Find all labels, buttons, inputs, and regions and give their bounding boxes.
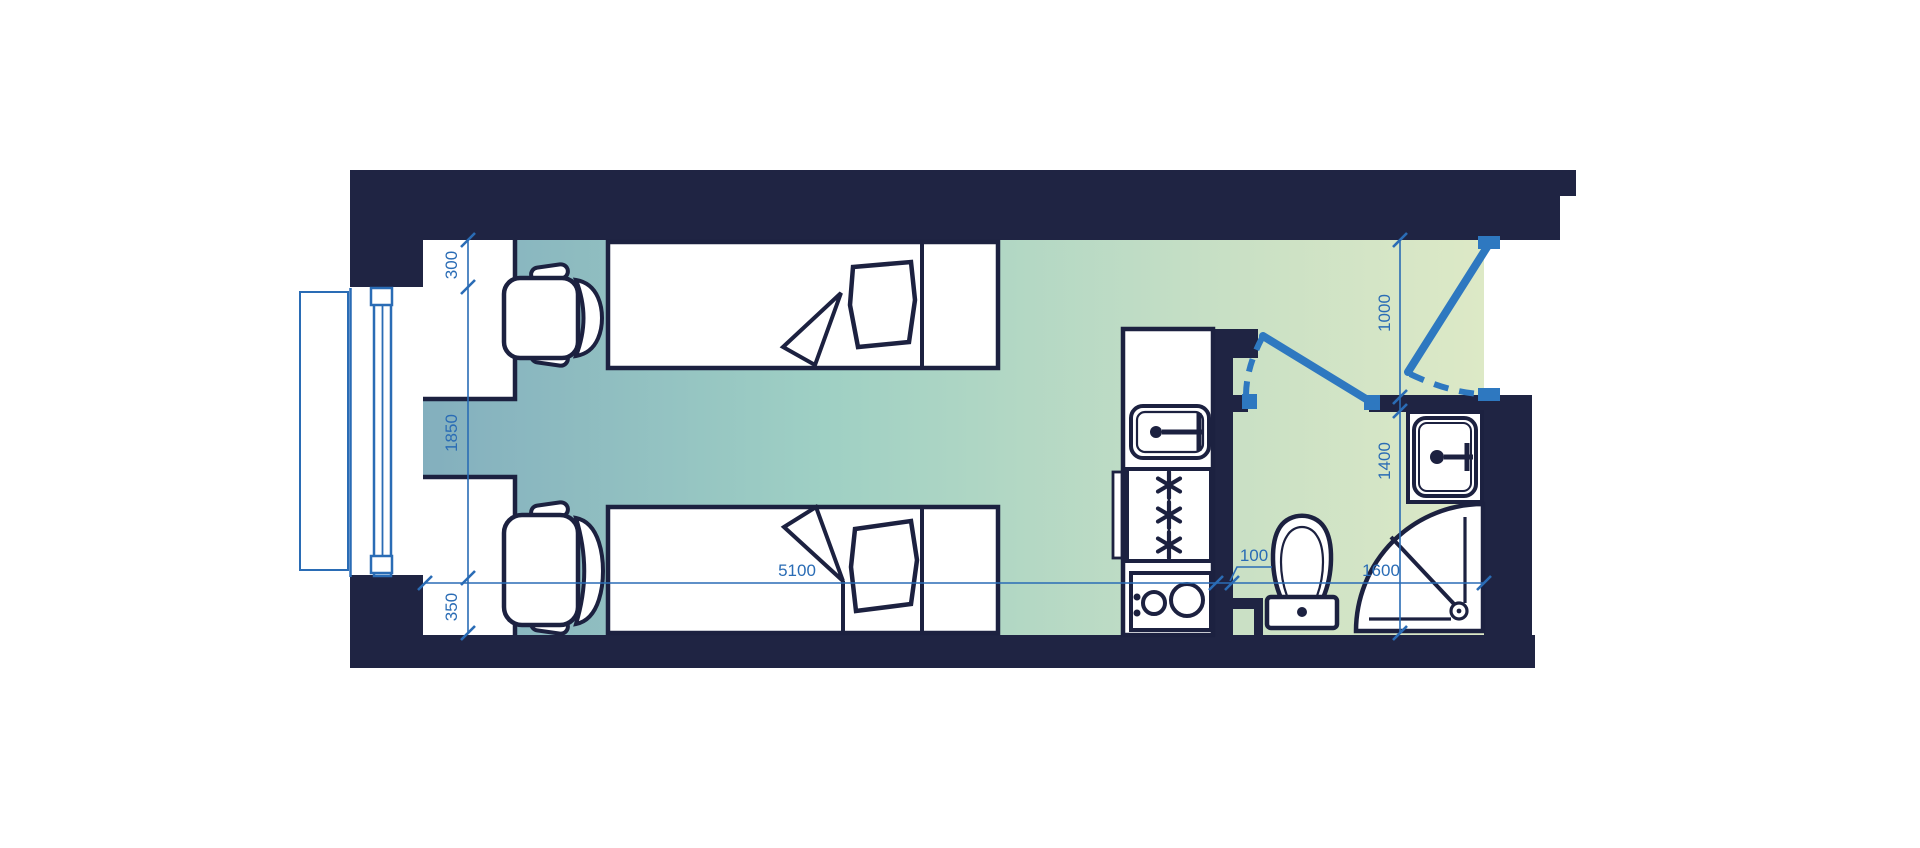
wall-stub-toilet-a	[1233, 598, 1263, 609]
desk-1	[423, 240, 515, 399]
toilet-flush-button	[1297, 607, 1307, 617]
wall-partition-stub-top	[1233, 329, 1258, 358]
floor-plan-canvas: 300 1850 350 5100 100 1600 1000 1400	[0, 0, 1920, 848]
dim-label-100: 100	[1240, 546, 1268, 565]
cooktop-knob-2	[1134, 610, 1141, 617]
fridge-freezer	[1113, 469, 1211, 561]
chair-2-seat	[504, 515, 578, 625]
entrance-door-jamb-bottom	[1478, 388, 1500, 401]
toilet	[1267, 516, 1337, 628]
wall-left-pier-bottom	[350, 575, 423, 637]
bed-1-pillow	[850, 262, 915, 347]
bed-2-pillow	[851, 521, 917, 611]
wall-left-pier-top	[350, 240, 423, 287]
wall-top-step	[1560, 170, 1576, 196]
window	[300, 288, 392, 577]
window-sill	[300, 292, 348, 570]
dim-label-1000: 1000	[1375, 294, 1394, 332]
window-frame-end-top	[371, 288, 392, 305]
bathroom-door-jamb-left	[1242, 394, 1257, 409]
dim-label-5100: 5100	[778, 561, 816, 580]
wall-stub-toilet-b	[1254, 609, 1263, 635]
window-frame-end-bottom	[371, 556, 392, 573]
burner-small	[1143, 592, 1165, 614]
shower-drain-dot	[1457, 609, 1462, 614]
dim-label-1400: 1400	[1375, 442, 1394, 480]
wall-bottom	[350, 635, 1535, 668]
chair-1-seat	[504, 278, 578, 358]
wall-top	[350, 170, 1560, 240]
cooktop-knob-1	[1134, 594, 1141, 601]
fridge-door	[1113, 472, 1122, 558]
burner-large	[1171, 584, 1203, 616]
kitchen-unit	[1113, 329, 1213, 635]
dim-label-350: 350	[442, 593, 461, 621]
kitchen-sink-drain	[1150, 426, 1162, 438]
cooktop	[1131, 573, 1211, 630]
bed-1	[608, 242, 998, 368]
dim-label-300: 300	[442, 251, 461, 279]
dim-label-1600: 1600	[1362, 561, 1400, 580]
dim-label-1850: 1850	[442, 414, 461, 452]
wall-kitchen-partition	[1214, 329, 1233, 635]
washbasin-drain	[1430, 450, 1444, 464]
floor-plan-drawing: 300 1850 350 5100 100 1600 1000 1400	[0, 0, 1920, 848]
desk-2	[423, 477, 515, 635]
kitchen-sink	[1131, 406, 1209, 458]
washbasin	[1408, 412, 1482, 502]
wall-right	[1484, 395, 1532, 668]
